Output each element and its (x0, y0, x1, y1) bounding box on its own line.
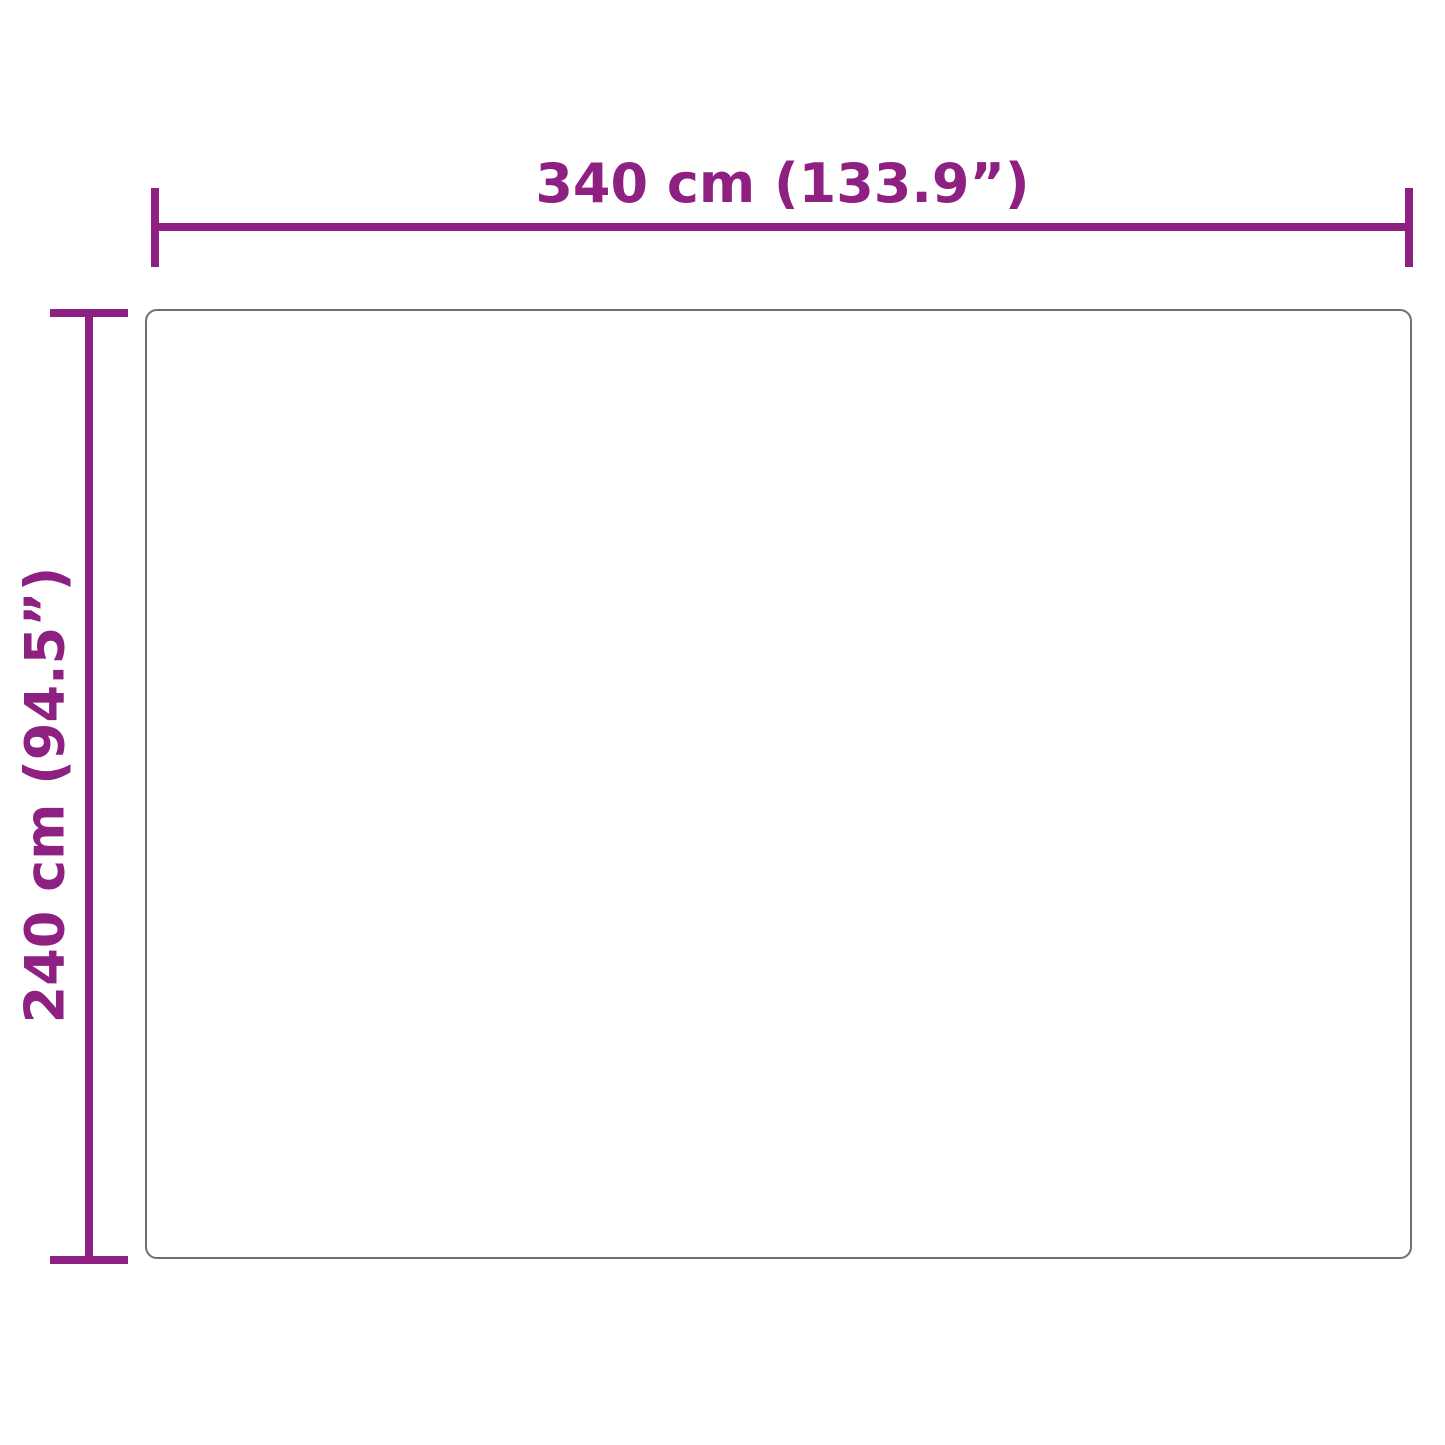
height-dimension-tick-bottom (50, 1256, 128, 1264)
height-dimension-tick-top (50, 309, 128, 317)
product-outline-rectangle (145, 309, 1412, 1259)
height-dimension-label: 240 cm (94.5”) (15, 322, 77, 1269)
dimension-diagram: 340 cm (133.9”) 240 cm (94.5”) (0, 0, 1445, 1445)
height-dimension-line (85, 313, 93, 1260)
width-dimension-tick-right (1405, 188, 1413, 267)
width-dimension-label: 340 cm (133.9”) (155, 153, 1410, 215)
width-dimension-line (155, 223, 1410, 231)
width-dimension-tick-left (151, 188, 159, 267)
